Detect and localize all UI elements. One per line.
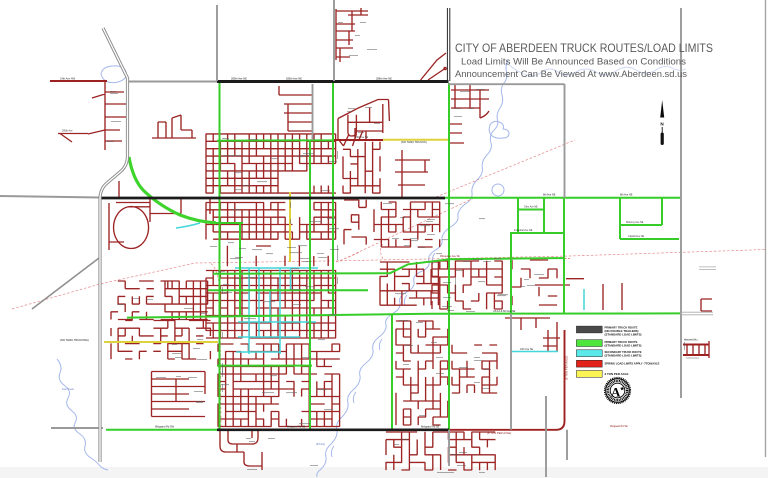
svg-text:Melgaard Rd SE: Melgaard Rd SE bbox=[421, 426, 440, 429]
svg-text:Melgaard Rd SW: Melgaard Rd SW bbox=[155, 426, 175, 429]
svg-text:(NO THRU TRUCKING): (NO THRU TRUCKING) bbox=[60, 338, 89, 342]
svg-text:SPRING LOAD LIMITS APPLY -7TON: SPRING LOAD LIMITS APPLY -7TON/AXLE bbox=[605, 362, 660, 366]
svg-text:Foot Creek: Foot Creek bbox=[62, 388, 75, 391]
svg-text:280th Ave NE: 280th Ave NE bbox=[231, 76, 247, 80]
svg-text:★: ★ bbox=[620, 386, 625, 393]
svg-text:US 12 & 6th Ave SE: US 12 & 6th Ave SE bbox=[493, 310, 516, 313]
svg-text:Capital Ave NE: Capital Ave NE bbox=[628, 235, 644, 238]
svg-text:3 TON PER AXLE: 3 TON PER AXLE bbox=[605, 372, 629, 376]
svg-text:13th Ave NE: 13th Ave NE bbox=[355, 136, 369, 139]
svg-text:300th Ave: 300th Ave bbox=[62, 130, 73, 133]
svg-text:8th Ave NE: 8th Ave NE bbox=[620, 193, 633, 196]
svg-text:(STANDARD LOAD LIMITS): (STANDARD LOAD LIMITS) bbox=[605, 353, 642, 357]
svg-text:Milwaukee Ave SE: Milwaukee Ave SE bbox=[440, 255, 460, 258]
svg-text:Melgaard Rd SE: Melgaard Rd SE bbox=[287, 426, 306, 429]
svg-text:285th Ave NE: 285th Ave NE bbox=[286, 76, 302, 80]
svg-text:Melgaard Rd SE: Melgaard Rd SE bbox=[610, 425, 628, 428]
svg-text:Glen Ave NE: Glen Ave NE bbox=[524, 206, 538, 209]
svg-text:Load Limits Will Be Announced: Load Limits Will Be Announced Based on C… bbox=[461, 57, 686, 68]
svg-text:(8 TON PER AXLE): (8 TON PER AXLE) bbox=[565, 356, 569, 380]
svg-text:CITY OF ABERDEEN TRUCK ROUTES/: CITY OF ABERDEEN TRUCK ROUTES/LOAD LIMIT… bbox=[455, 42, 713, 55]
svg-text:(8 Pond): (8 Pond) bbox=[316, 444, 325, 446]
svg-text:Mckinny Ave NE: Mckinny Ave NE bbox=[626, 221, 644, 224]
svg-text:8th Ave NE: 8th Ave NE bbox=[543, 194, 556, 197]
svg-text:16th Ave SE: 16th Ave SE bbox=[520, 348, 534, 351]
svg-text:Announcement Can Be Viewed At: Announcement Can Be Viewed At www.Aberde… bbox=[455, 69, 687, 80]
svg-text:(8 TON PER AXLE): (8 TON PER AXLE) bbox=[487, 431, 511, 435]
svg-text:(STANDARD LOAD LIMITS): (STANDARD LOAD LIMITS) bbox=[605, 332, 642, 336]
svg-text:24th Ave NW: 24th Ave NW bbox=[60, 77, 76, 81]
svg-text:(NO THRU TRUCKS): (NO THRU TRUCKS) bbox=[401, 140, 427, 144]
svg-text:Industrial Ave NE: Industrial Ave NE bbox=[514, 229, 533, 232]
svg-text:286th Ave NE: 286th Ave NE bbox=[376, 76, 392, 80]
svg-text:(STANDARD LOAD LIMITS): (STANDARD LOAD LIMITS) bbox=[605, 343, 642, 347]
